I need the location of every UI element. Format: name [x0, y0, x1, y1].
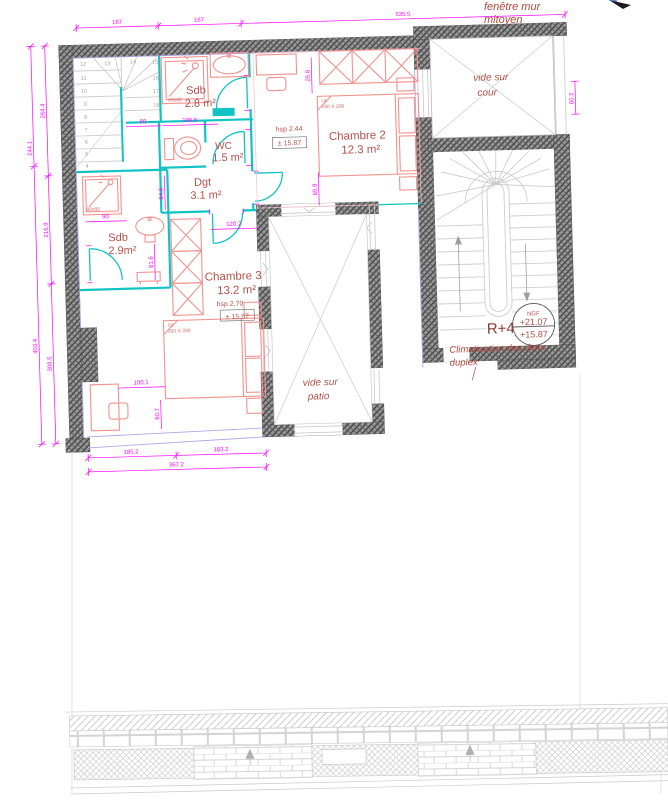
- window-note: fenêtre mur mitoyen: [484, 1, 542, 26]
- climatisation-line2: duplex: [450, 357, 480, 369]
- lightwell-line: [378, 204, 421, 205]
- bed2-label: 160 X 200: [321, 104, 344, 111]
- wall-bottom-left: [66, 438, 90, 453]
- cour-label-line1: vide sur: [473, 72, 509, 84]
- dim-right: 60.2: [569, 92, 575, 105]
- chambre3-furniture: [88, 302, 266, 431]
- wardrobe-icon: [171, 219, 204, 316]
- stair-rail: [121, 87, 123, 162]
- wall-stair-bottom-tab: [498, 358, 576, 369]
- stair-num: 13: [104, 61, 110, 67]
- dim-bottom-total: 367.2: [169, 462, 185, 468]
- dim-top-2: 167: [194, 17, 205, 23]
- stair-num: 12: [80, 62, 86, 68]
- room-area-chambre2: 12.3 m²: [341, 144, 380, 157]
- stair-num: 15: [152, 60, 158, 66]
- site-section: [65, 704, 668, 794]
- dim-84: 84.6: [159, 187, 165, 200]
- stair-num: 10: [81, 89, 87, 95]
- sink-icon: [210, 52, 249, 77]
- dim-81: 81.6: [149, 255, 155, 268]
- dim-bottom-2: 183.2: [213, 447, 229, 453]
- dim-65: 65.9: [313, 183, 319, 196]
- door-chambre2: [254, 172, 283, 201]
- ngf-lower: +15.87: [520, 329, 548, 340]
- stair-num: 16: [153, 76, 159, 82]
- desk-icon: [90, 384, 128, 431]
- dim-60: 60.7: [155, 407, 161, 420]
- hatched-panel: [536, 740, 668, 774]
- stair-num: 14: [130, 59, 136, 65]
- room-label-dgt: Dgt: [194, 176, 211, 188]
- window-note-line1: fenêtre mur: [484, 1, 542, 13]
- nightstand-icon: [397, 78, 414, 91]
- room-area-chambre3: 13.2 m²: [217, 284, 256, 297]
- dim-left-inner-1: 264.4: [40, 103, 46, 119]
- dim-bottom-1: 185.2: [124, 449, 140, 455]
- door-chambre3: [212, 213, 243, 244]
- dim-left-inner-2: 216.9: [44, 222, 50, 238]
- stair-num: 18: [153, 103, 159, 109]
- patio-label-line1: vide sur: [303, 377, 339, 389]
- stair-num: 5: [85, 152, 88, 158]
- wall-patio-left1: [257, 217, 270, 251]
- floor-plan-page: { "annotations": { "window_note_line1": …: [0, 0, 668, 800]
- stair-num: 6: [85, 140, 88, 146]
- ngf-upper: +21.07: [520, 317, 548, 328]
- stair-num: 7: [84, 128, 87, 134]
- wall-patio-left3: [261, 372, 274, 425]
- dim-25: 25.8: [305, 69, 311, 82]
- stair-num: 4: [85, 164, 88, 170]
- cour-label-line2: cour: [477, 87, 497, 99]
- dim-left-inner-3: 308.5: [47, 356, 53, 372]
- dim-106: 106.6: [182, 118, 198, 124]
- dim-top-1: 167: [112, 20, 123, 26]
- toilet-icon: [164, 137, 201, 160]
- level-chambre3: ± 15.87: [226, 313, 250, 321]
- wall-top: [59, 35, 422, 58]
- desk-icon: [256, 54, 297, 91]
- plan-drawing: vide sur cour vide sur patio R+4: [0, 0, 668, 800]
- cursor-icon: [609, 0, 631, 9]
- sdb-bottom-fixtures: [82, 174, 165, 286]
- dim-top-3: 535.5: [395, 12, 411, 18]
- bed3-label: 160 X 200: [168, 328, 191, 335]
- level-label: R+4: [487, 320, 515, 338]
- room-label-wc: WC: [215, 141, 232, 152]
- door-sdb-top: [216, 77, 248, 109]
- window-note-line2: mitoyen: [484, 14, 523, 26]
- hatched-panel: [74, 748, 194, 780]
- sink-icon: [136, 217, 165, 243]
- room-label-chambre2: Chambre 2: [329, 129, 386, 143]
- room-area-wc: 1.5 m²: [212, 151, 244, 164]
- stair-num: 17: [153, 89, 159, 95]
- bench-icon: [137, 272, 160, 285]
- room-label-sdb-bottom: Sdb: [108, 232, 128, 245]
- shower-bottom-label: 80x80: [86, 206, 100, 212]
- stair-num: 9: [84, 102, 87, 108]
- vide-sur-patio: vide sur patio: [269, 214, 373, 425]
- wall-inset: [322, 749, 366, 765]
- plan-group: vide sur cour vide sur patio R+4: [24, 7, 589, 477]
- room-label-chambre3: Chambre 3: [205, 270, 262, 284]
- level-chambre2: ± 15.87: [278, 140, 302, 148]
- dim-120: 120.2: [226, 222, 242, 228]
- dim-100: 100.1: [134, 380, 150, 386]
- room-label-sdb-top: Sdb: [186, 84, 206, 97]
- stair-num: 11: [81, 76, 87, 82]
- hsp-chambre3: hsp 2.70: [216, 301, 243, 309]
- dim-left-outer-2: 403.4: [33, 338, 39, 354]
- room-area-sdb-bottom: 2.9m²: [108, 244, 137, 257]
- dim-90: 90: [102, 214, 110, 220]
- nightstand-icon: [247, 398, 262, 413]
- room-area-dgt: 3.1 m²: [190, 189, 222, 202]
- wall-left-notch: [81, 328, 99, 382]
- shower-top-label: 80x80: [168, 97, 182, 103]
- brick-panel: [194, 745, 312, 780]
- room-area-sdb-top: 2.8 m²: [185, 97, 217, 110]
- stair-num: 8: [84, 115, 87, 121]
- wall-cour-right-corner: [550, 22, 566, 35]
- hsp-chambre2: hsp 2.44: [276, 126, 303, 134]
- dim-80: 80: [139, 119, 147, 125]
- wardrobe-icon: [319, 49, 418, 85]
- wall-left: [59, 45, 84, 445]
- brick-panel: [418, 741, 536, 776]
- vide-sur-cour: vide sur cour: [430, 36, 556, 138]
- dim-left-outer-1: 244.1: [27, 140, 33, 156]
- patio-label-line2: patio: [307, 391, 330, 403]
- nightstand-icon: [400, 177, 417, 190]
- wall-patio-right2: [372, 404, 384, 422]
- wall-party-upper: [414, 39, 431, 69]
- interior-stair: 4 5 6 7 8 9 10 11 12 13 14 15 16 17 18: [73, 56, 162, 170]
